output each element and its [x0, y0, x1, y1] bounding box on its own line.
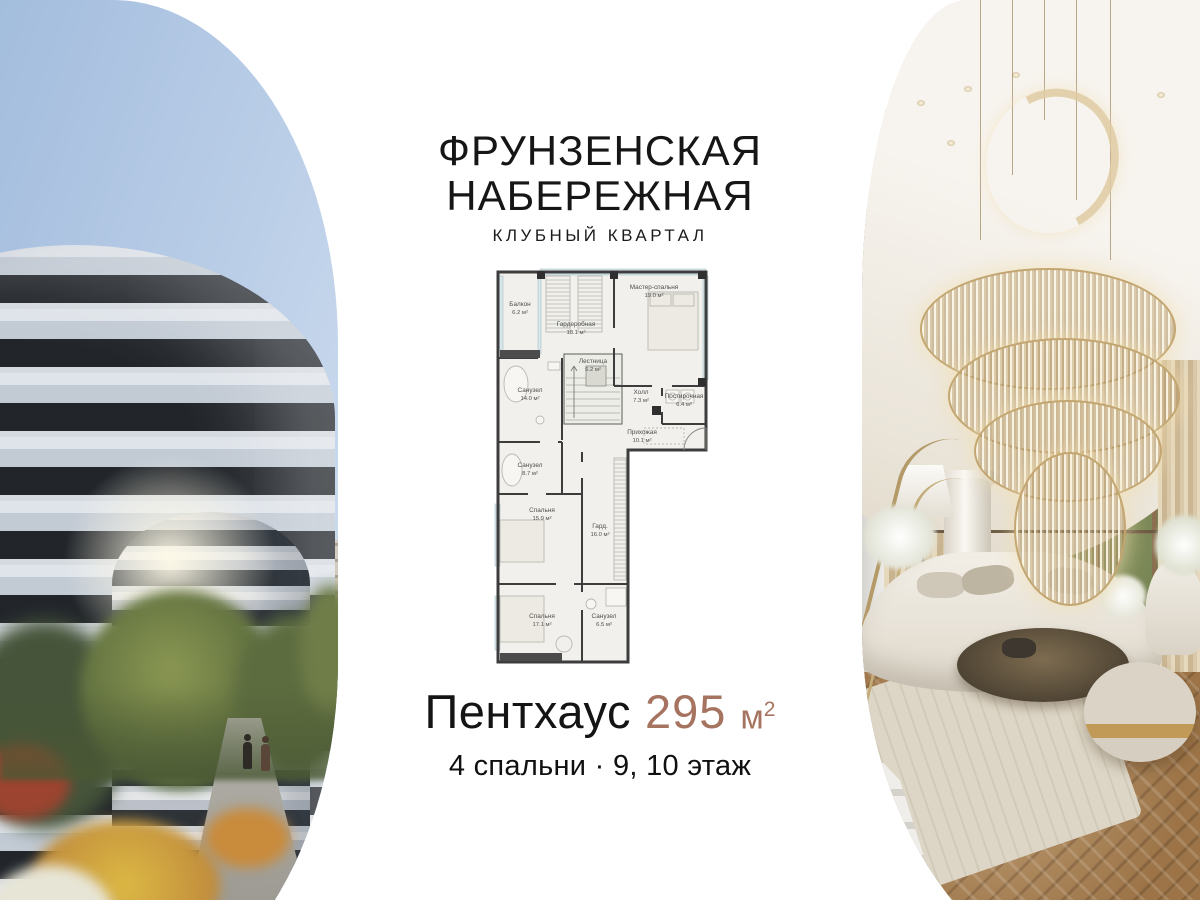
- floor-plan: Балкон 6.2 м² Гардеробная 18.1 м² Мастер…: [494, 262, 710, 668]
- room-area-sanuzel-65: 6.5 м²: [596, 622, 612, 628]
- ceiling-spotlight: [947, 140, 955, 146]
- ceiling-spotlight: [1012, 72, 1020, 78]
- room-label-balkon: Балкон: [509, 301, 531, 308]
- chandelier-wire: [980, 0, 981, 240]
- room-label-prihozhaya: Прихожая: [627, 429, 657, 436]
- apartment-details: 4 спальни · 9, 10 этаж: [340, 750, 860, 783]
- unit-superscript: 2: [764, 698, 776, 721]
- room-area-holl: 7.3 м²: [633, 398, 649, 404]
- apartment-summary: Пентхаус 295 м2: [290, 684, 910, 739]
- room-label-spalnya-171: Спальня: [529, 613, 555, 620]
- armchair: [1145, 560, 1200, 655]
- room-label-garderobnaya: Гардеробная: [557, 320, 596, 328]
- room-label-sanuzel-14: Санузел: [518, 387, 543, 394]
- sofa-pillow: [917, 572, 965, 598]
- room-area-gard: 16.0 м²: [590, 532, 609, 538]
- room-area-spalnya-171: 17.1 м²: [532, 622, 551, 628]
- pedestrian-head: [262, 736, 269, 743]
- room-area-garderobnaya: 18.1 м²: [566, 330, 585, 336]
- room-label-sanuzel-87: Санузел: [518, 462, 543, 469]
- unit-letter: м: [740, 698, 763, 736]
- title-line-2: НАБЕРЕЖНАЯ: [446, 172, 753, 219]
- pedestrian-head: [244, 734, 251, 741]
- page: ФРУНЗЕНСКАЯ НАБЕРЕЖНАЯ КЛУБНЫЙ КВАРТАЛ: [0, 0, 1200, 900]
- pedestrian: [243, 742, 252, 769]
- room-area-sanuzel-87: 8.7 м²: [522, 471, 538, 477]
- flower-bouquet: [864, 505, 936, 569]
- room-label-holl: Холл: [633, 389, 648, 396]
- garden-greenery: [0, 690, 338, 780]
- room-label-master: Мастер-спальня: [630, 284, 679, 291]
- flower-bed-orange: [205, 808, 290, 868]
- room-label-spalnya-159: Спальня: [529, 507, 555, 514]
- room-area-postirochnaya: 6.4 м²: [676, 402, 692, 408]
- project-subtitle: КЛУБНЫЙ КВАРТАЛ: [340, 226, 860, 246]
- pouf: [1084, 662, 1196, 762]
- room-label-postirochnaya: Постирочная: [665, 393, 704, 400]
- apartment-area-unit: м2: [740, 698, 775, 737]
- project-title: ФРУНЗЕНСКАЯ НАБЕРЕЖНАЯ: [340, 128, 860, 219]
- title-line-1: ФРУНЗЕНСКАЯ: [438, 127, 762, 174]
- room-label-sanuzel-65: Санузел: [592, 613, 617, 620]
- ceiling-spotlight: [917, 100, 925, 106]
- apartment-area-value: 295: [645, 684, 726, 739]
- room-area-prihozhaya: 10.1 м²: [632, 438, 651, 444]
- room-area-lestnitsa: 6.2 м²: [585, 367, 601, 373]
- apartment-type: Пентхаус: [425, 684, 631, 739]
- room-label-gard: Гард.: [592, 523, 608, 530]
- left-photo-building-exterior: [0, 0, 338, 900]
- room-area-spalnya-159: 15.9 м²: [532, 516, 551, 522]
- chandelier-cascade: [1014, 452, 1126, 606]
- ceiling-spotlight: [964, 86, 972, 92]
- room-area-master: 19.0 м²: [644, 293, 663, 299]
- room-area-sanuzel-14: 14.0 м²: [520, 396, 539, 402]
- right-photo-interior: [862, 0, 1200, 900]
- pedestrian: [261, 744, 270, 771]
- room-area-balkon: 6.2 м²: [512, 310, 528, 316]
- table-decor: [1002, 638, 1036, 658]
- room-label-lestnitsa: Лестница: [579, 358, 608, 365]
- floor-plan-drawing: Балкон 6.2 м² Гардеробная 18.1 м² Мастер…: [494, 262, 710, 668]
- ceiling-spotlight: [1157, 92, 1165, 98]
